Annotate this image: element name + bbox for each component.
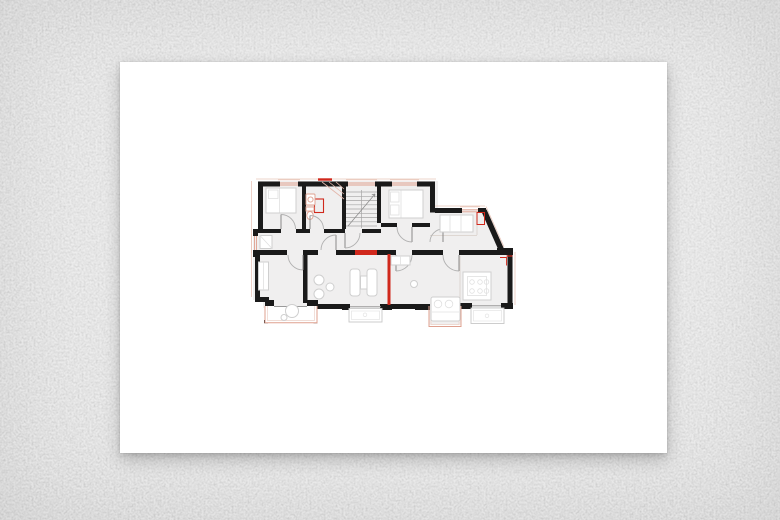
bed-top-right <box>389 190 423 218</box>
floor-plan-drawing <box>250 170 522 338</box>
sofa <box>367 269 377 296</box>
sofa <box>350 269 360 296</box>
armchair <box>314 289 324 299</box>
scene <box>0 0 780 520</box>
armchair <box>314 275 324 285</box>
paper-sheet <box>120 62 667 453</box>
bed-top-left <box>266 188 296 213</box>
coffee-table <box>361 276 368 289</box>
side-table <box>326 283 334 291</box>
wardrobe-wing <box>440 215 473 232</box>
stool-bay <box>281 315 287 321</box>
chair-bay <box>286 305 299 318</box>
plant <box>411 281 418 288</box>
sofa-bay <box>431 297 460 321</box>
